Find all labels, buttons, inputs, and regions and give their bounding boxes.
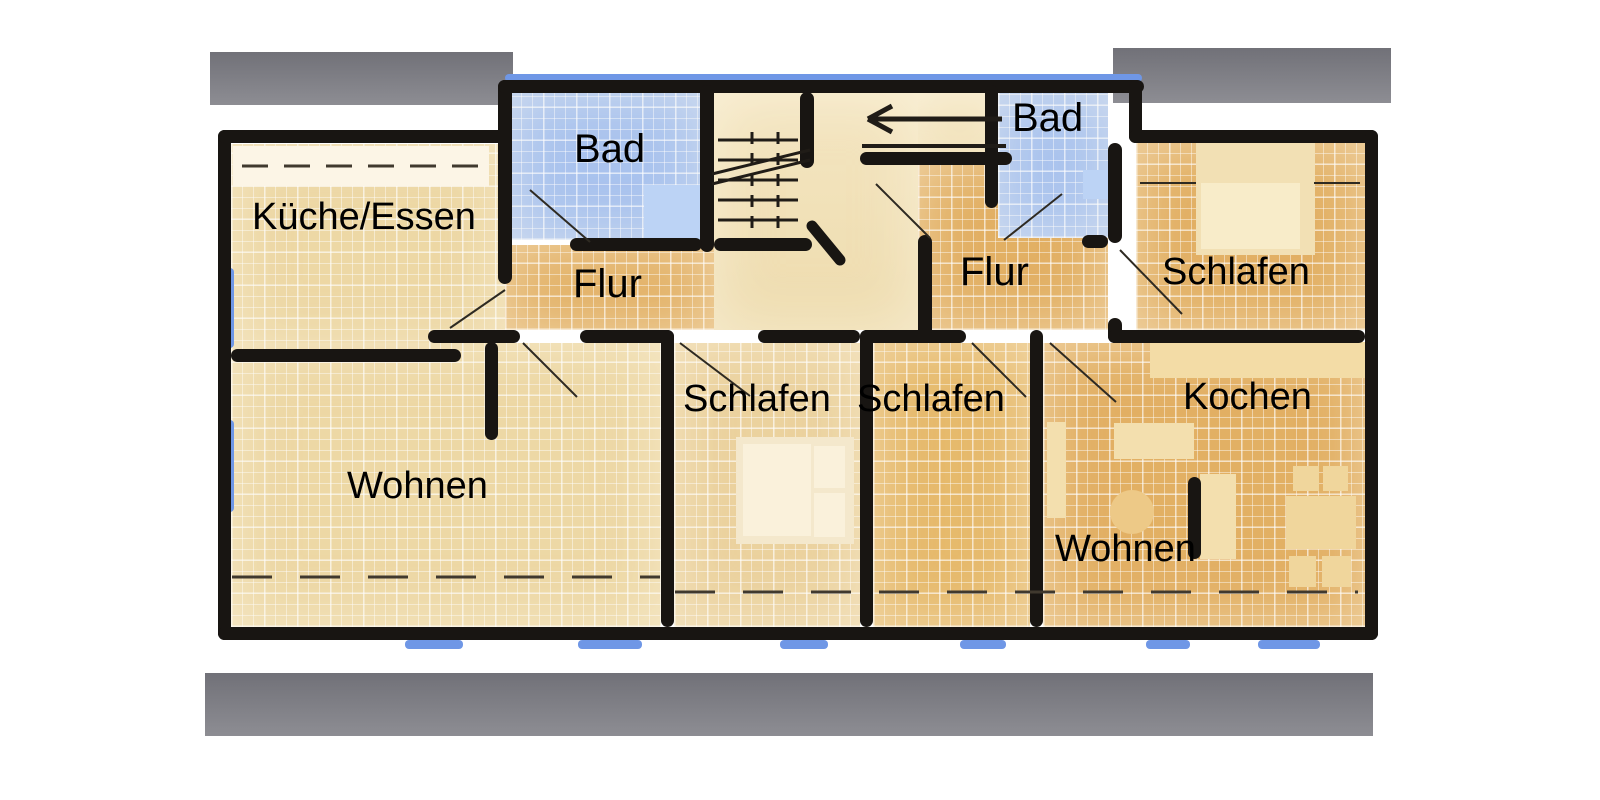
room-label-wohnen-left: Wohnen bbox=[347, 465, 488, 508]
room-label-flur-right: Flur bbox=[960, 250, 1029, 295]
room-label-schlafen-mid-left: Schlafen bbox=[683, 378, 831, 421]
room-label-bad-left: Bad bbox=[574, 127, 645, 172]
room-label-schlafen-right: Schlafen bbox=[1162, 251, 1310, 294]
staircase-lines bbox=[712, 106, 1006, 260]
floor-plan: Küche/Essen Bad Flur Bad Flur Schlafen S… bbox=[0, 0, 1600, 800]
room-label-wohnen-right: Wohnen bbox=[1055, 528, 1196, 571]
room-label-flur-left: Flur bbox=[573, 262, 642, 307]
room-label-schlafen-mid-right: Schlafen bbox=[857, 378, 1005, 421]
room-label-kueche: Küche/Essen bbox=[252, 196, 476, 239]
room-label-kochen: Kochen bbox=[1183, 376, 1312, 419]
room-label-bad-right: Bad bbox=[1012, 96, 1083, 141]
